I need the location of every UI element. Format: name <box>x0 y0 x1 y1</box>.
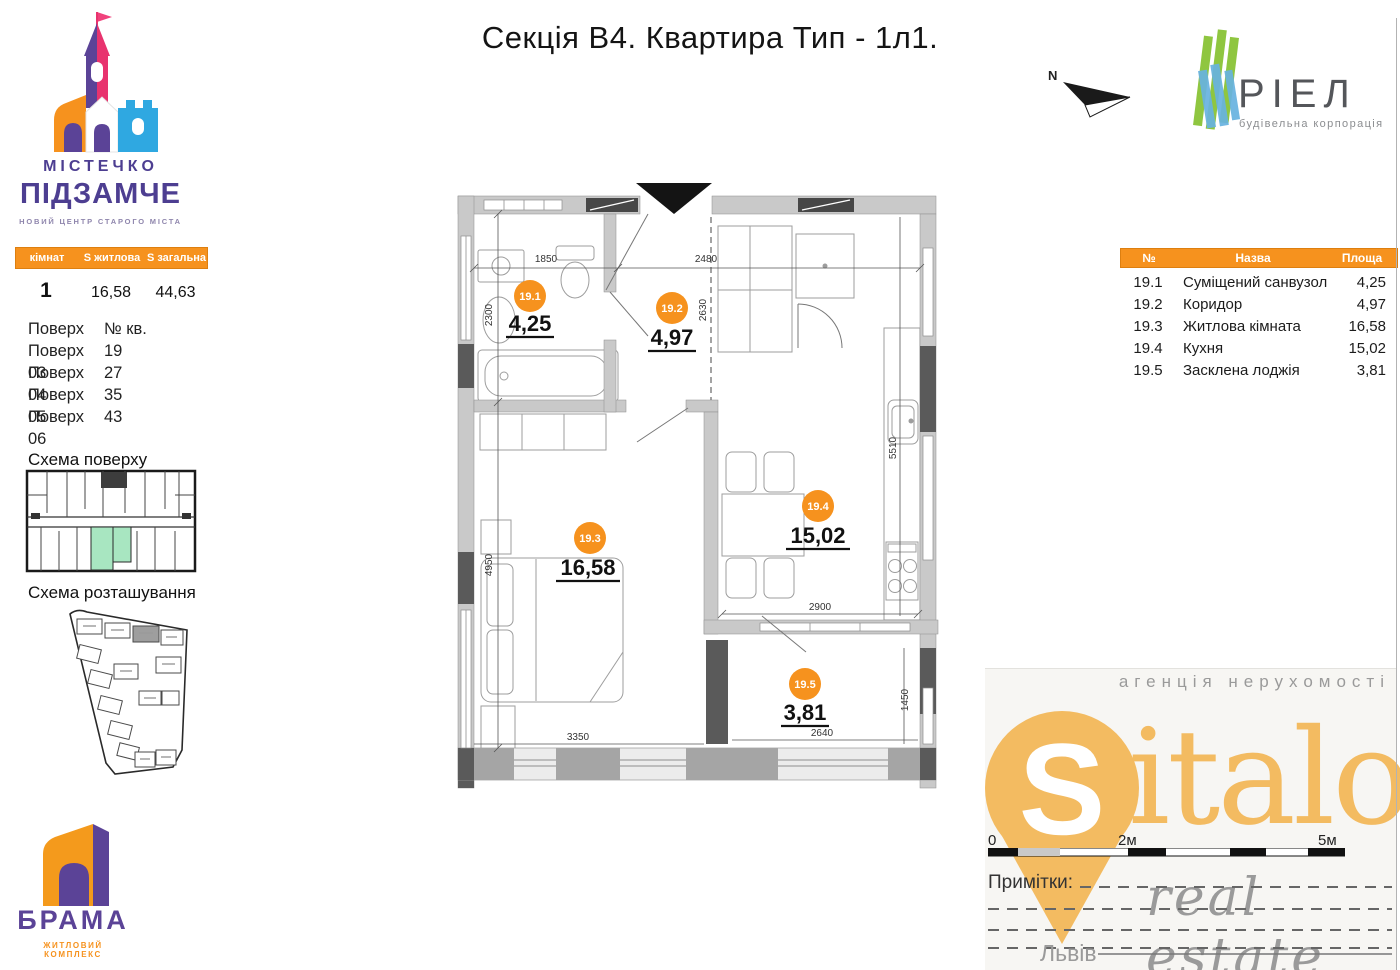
floor-label: Поверх 04 <box>28 362 104 384</box>
svg-text:4,25: 4,25 <box>509 311 552 336</box>
rooms-table-row: 19.3 Житлова кімната 16,58 <box>1120 316 1398 338</box>
flat-plan-sheet: Секція В4. Квартира Тип - 1л1. МІСТЕЧКО … <box>0 0 1400 970</box>
room-badge-19-3: 19.3 16,58 <box>556 522 620 581</box>
room-area: 16,58 <box>1328 316 1394 338</box>
summary-total-value: 44,63 <box>145 284 206 302</box>
pidzamche-logo-text: МІСТЕЧКО ПІДЗАМЧЕ НОВИЙ ЦЕНТР СТАРОГО МІ… <box>8 158 193 226</box>
room-num: 19.4 <box>1120 338 1176 360</box>
living-furniture <box>480 414 623 752</box>
summary-table-header: кімнат S житлова S загальна <box>15 247 208 269</box>
location-scheme-map <box>15 602 200 792</box>
svg-text:19.3: 19.3 <box>579 533 600 545</box>
brama-name: БРАМА <box>13 905 133 936</box>
room-area: 4,25 <box>1328 272 1394 294</box>
svg-text:3350: 3350 <box>567 732 590 743</box>
room-name: Кухня <box>1176 338 1328 360</box>
floors-row: Поверх 03 19 <box>28 340 154 362</box>
summary-header-total: S загальна <box>146 252 207 264</box>
scale-bar <box>988 848 1345 857</box>
room-num: 19.2 <box>1120 294 1176 316</box>
agency-tagline: агенція нерухомості <box>1000 672 1390 692</box>
floors-row: Поверх 05 35 <box>28 384 154 406</box>
scale-label-2m: 2м <box>1118 832 1137 849</box>
summary-table: кімнат S житлова S загальна 1 16,58 44,6… <box>15 247 208 303</box>
room-area: 15,02 <box>1328 338 1394 360</box>
floors-col2-header: № кв. <box>104 318 154 340</box>
floor-scheme-thumbnail <box>25 469 197 577</box>
sitalo-logo-text: italo <box>1128 712 1400 844</box>
pidzamche-line1: МІСТЕЧКО <box>8 158 193 176</box>
brama-gate-icon <box>35 816 175 908</box>
floors-col1-header: Поверх <box>28 318 104 340</box>
rooms-table-body: 19.1 Суміщений санвузол 4,25 19.2 Коридо… <box>1120 272 1398 382</box>
summary-header-living: S житлова <box>78 252 146 264</box>
svg-text:1450: 1450 <box>900 688 911 711</box>
floors-row: Поверх 04 27 <box>28 362 154 384</box>
svg-text:4,97: 4,97 <box>651 325 694 350</box>
floor-label: Поверх 06 <box>28 406 104 428</box>
pidzamche-tagline: НОВИЙ ЦЕНТР СТАРОГО МІСТА <box>8 217 193 226</box>
svg-text:16,58: 16,58 <box>560 555 615 580</box>
brama-tagline: ЖИТЛОВИЙ КОМПЛЕКС <box>13 941 133 959</box>
summary-rooms-value: 1 <box>15 279 77 303</box>
svg-text:2480: 2480 <box>695 254 718 265</box>
riel-name: РІЕЛ <box>1238 72 1357 117</box>
floor-plan-drawing: 1850 2480 2300 2630 4950 5510 2900 3350 … <box>450 178 942 796</box>
brama-logo-text: БРАМА ЖИТЛОВИЙ КОМПЛЕКС <box>13 905 133 959</box>
city-label: Львів <box>1040 940 1097 967</box>
room-num: 19.5 <box>1120 360 1176 382</box>
north-arrow-icon <box>1045 70 1145 125</box>
location-scheme-label: Схема розташування <box>28 583 196 603</box>
floors-row: Поверх 06 43 <box>28 406 154 428</box>
room-badge-19-2: 19.2 4,97 <box>648 292 696 351</box>
apt-number: 35 <box>104 384 154 406</box>
svg-text:2300: 2300 <box>484 303 495 326</box>
rooms-table-row: 19.2 Коридор 4,97 <box>1120 294 1398 316</box>
riel-tagline: будівельна корпорація <box>1239 118 1384 130</box>
summary-table-values: 1 16,58 44,63 <box>15 279 208 303</box>
rooms-table-row: 19.4 Кухня 15,02 <box>1120 338 1398 360</box>
svg-text:2630: 2630 <box>698 298 709 321</box>
rooms-header-area: Площа <box>1329 251 1395 265</box>
room-area: 4,97 <box>1328 294 1394 316</box>
svg-text:19.4: 19.4 <box>807 501 829 513</box>
room-num: 19.3 <box>1120 316 1176 338</box>
rooms-header-name: Назва <box>1177 251 1329 265</box>
apt-number: 27 <box>104 362 154 384</box>
rooms-table-row: 19.1 Суміщений санвузол 4,25 <box>1120 272 1398 294</box>
page-title: Секція В4. Квартира Тип - 1л1. <box>420 20 1000 56</box>
room-num: 19.1 <box>1120 272 1176 294</box>
scale-label-5m: 5м <box>1318 832 1337 849</box>
svg-text:19.2: 19.2 <box>661 303 682 315</box>
scale-label-0: 0 <box>988 832 996 849</box>
rooms-table-header: № Назва Площа <box>1120 248 1398 268</box>
floor-label: Поверх 03 <box>28 340 104 362</box>
svg-text:5510: 5510 <box>888 436 899 459</box>
floor-scheme-label: Схема поверху <box>28 450 147 470</box>
page-edge-divider <box>1396 18 1397 970</box>
rooms-header-num: № <box>1121 251 1177 265</box>
pidzamche-castle-icon <box>40 10 160 156</box>
room-area: 3,81 <box>1328 360 1394 382</box>
room-name: Коридор <box>1176 294 1328 316</box>
apt-number: 43 <box>104 406 154 428</box>
summary-living-value: 16,58 <box>77 284 145 302</box>
floors-table: Поверх № кв. Поверх 03 19 Поверх 04 27 П… <box>28 318 154 428</box>
floor-label: Поверх 05 <box>28 384 104 406</box>
svg-text:4950: 4950 <box>484 553 495 576</box>
floors-header-row: Поверх № кв. <box>28 318 154 340</box>
svg-text:2640: 2640 <box>811 728 834 739</box>
svg-text:3,81: 3,81 <box>784 700 827 725</box>
apt-number: 19 <box>104 340 154 362</box>
sitalo-logo-s: S <box>1019 716 1106 862</box>
summary-header-rooms: кімнат <box>16 252 78 264</box>
svg-text:15,02: 15,02 <box>790 523 845 548</box>
rooms-table-row: 19.5 Засклена лоджія 3,81 <box>1120 360 1398 382</box>
svg-text:2900: 2900 <box>809 602 832 613</box>
svg-text:19.1: 19.1 <box>519 291 540 303</box>
pidzamche-line2: ПІДЗАМЧЕ <box>8 178 193 211</box>
room-name: Суміщений санвузол <box>1176 272 1328 294</box>
room-name: Житлова кімната <box>1176 316 1328 338</box>
room-badge-19-5: 19.5 3,81 <box>781 668 829 726</box>
svg-text:1850: 1850 <box>535 254 558 265</box>
room-name: Засклена лоджія <box>1176 360 1328 382</box>
entrance-arrow <box>636 183 712 214</box>
svg-text:19.5: 19.5 <box>794 679 815 691</box>
